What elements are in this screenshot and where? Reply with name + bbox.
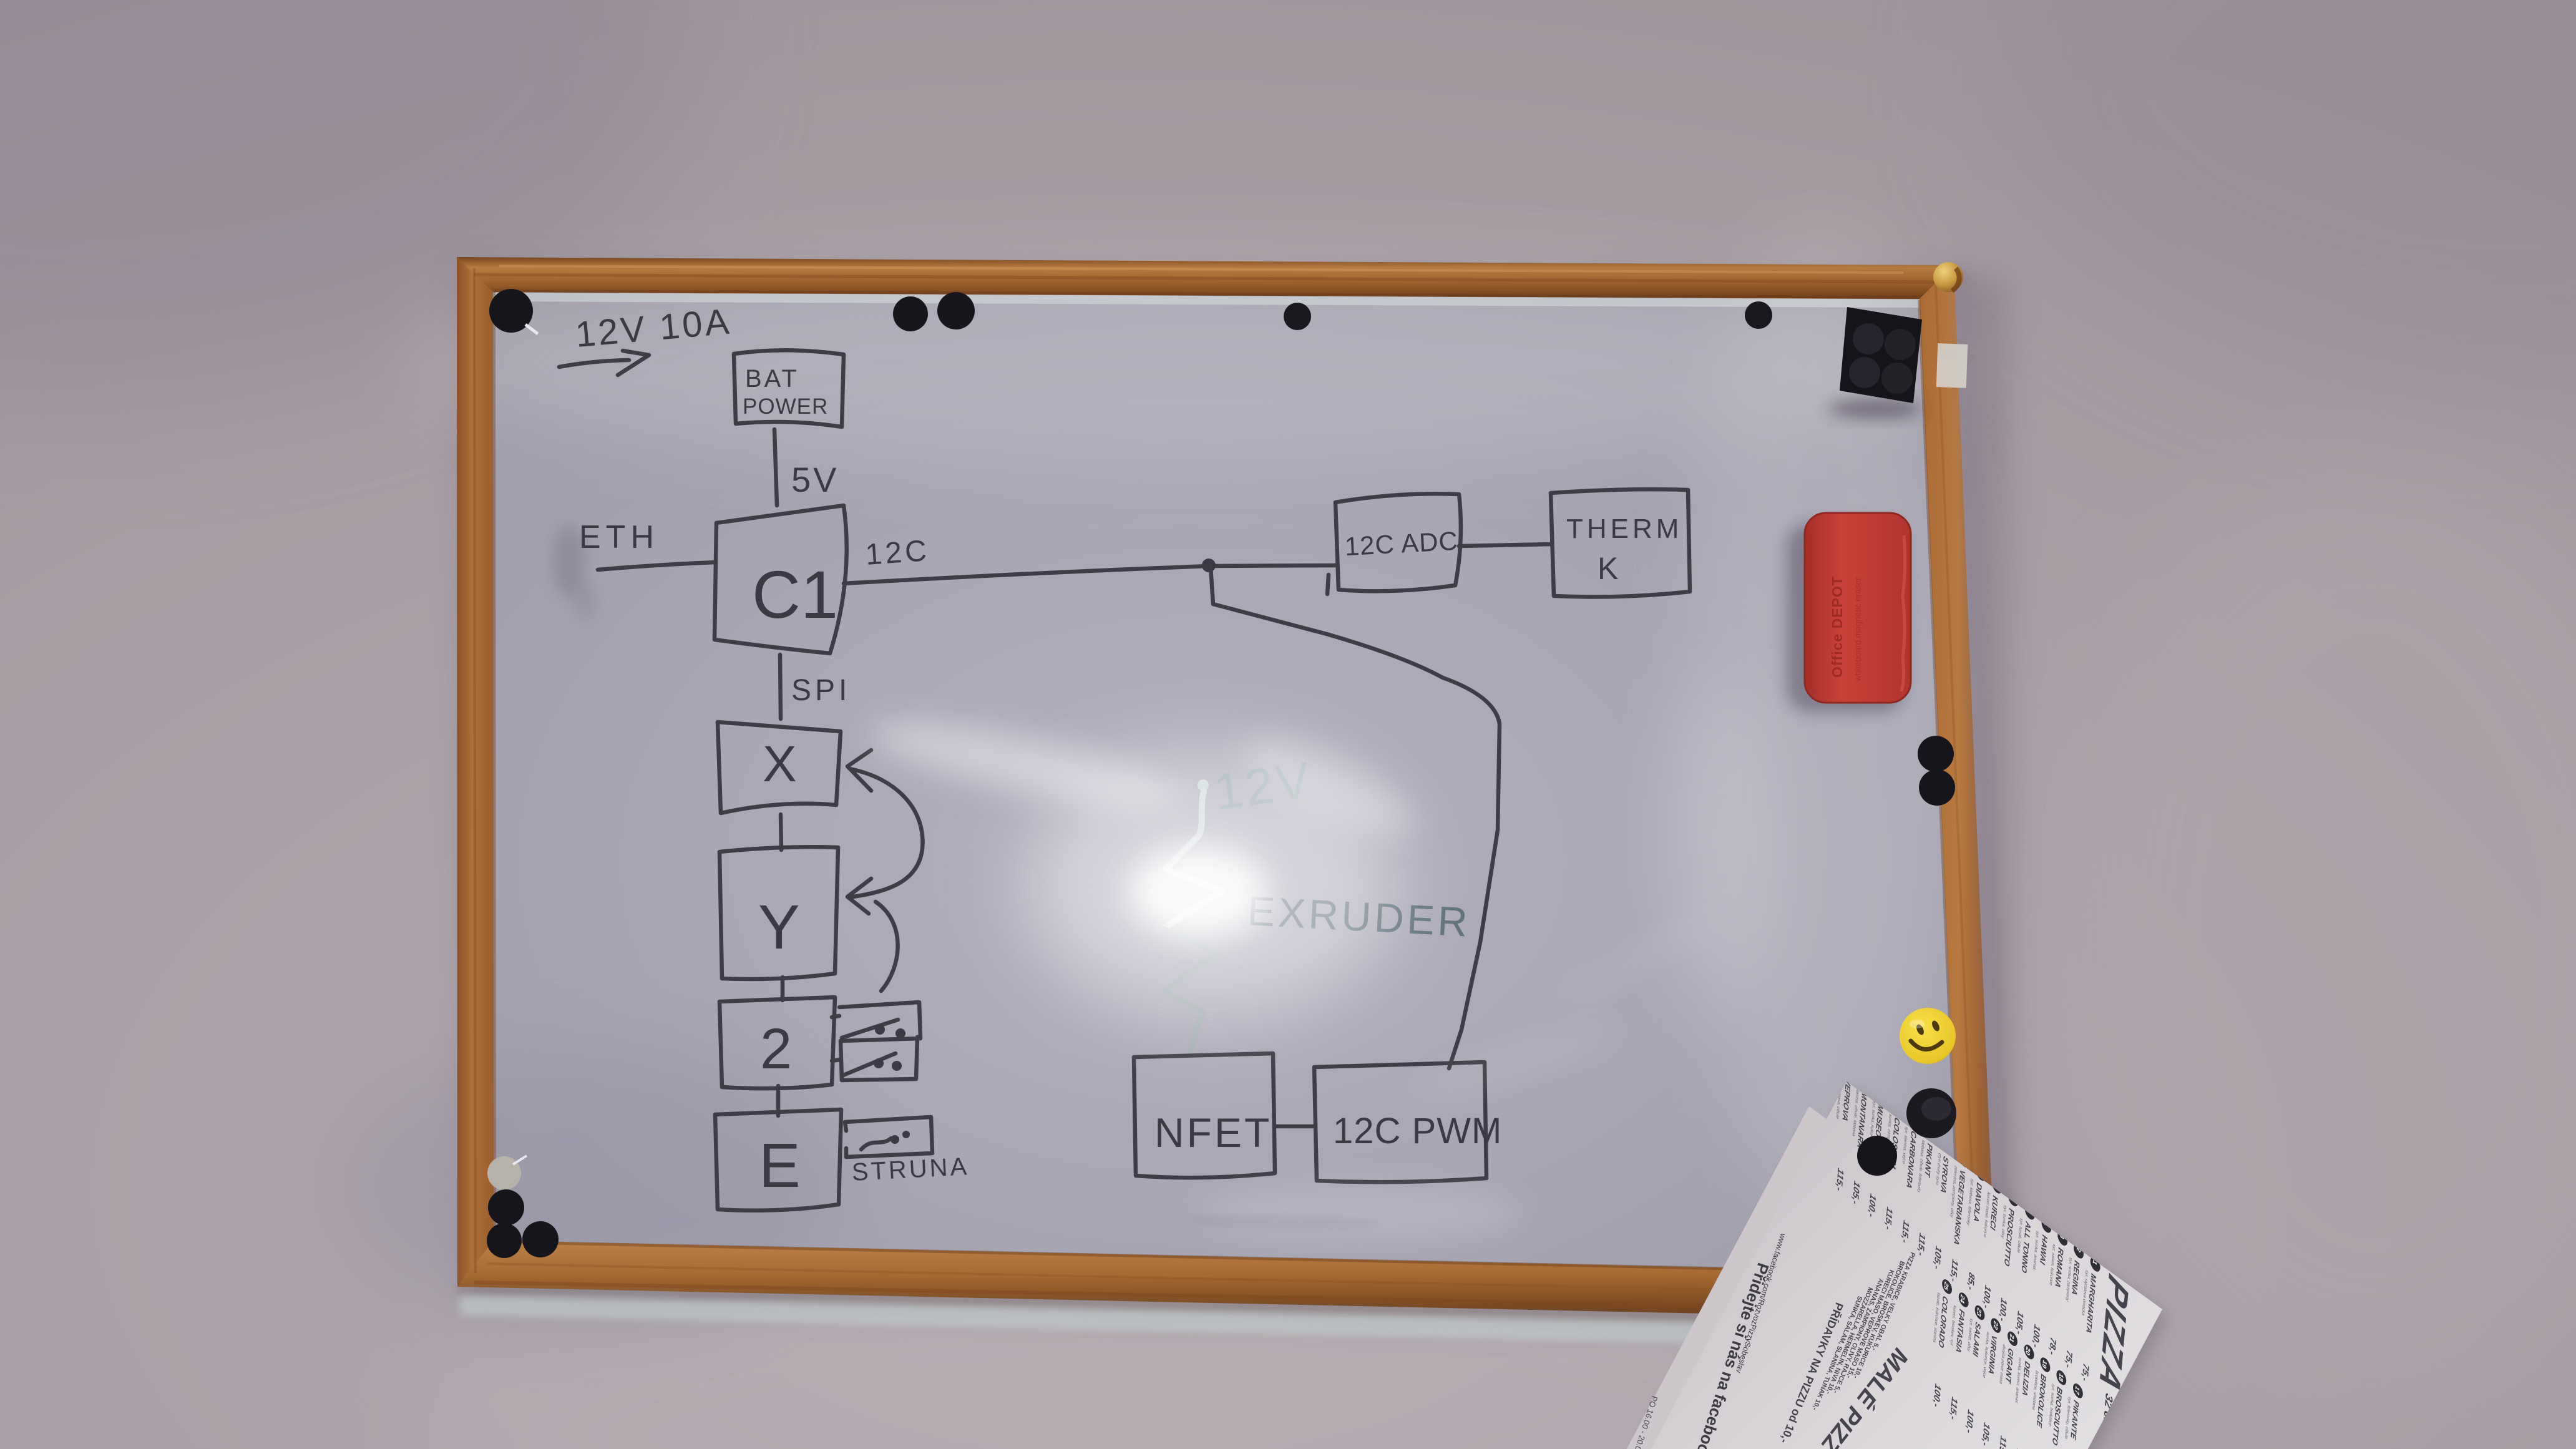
svg-text:POWER: POWER <box>743 394 828 419</box>
svg-text:ETH: ETH <box>579 519 659 555</box>
svg-text:C1: C1 <box>752 557 838 632</box>
svg-text:E: E <box>759 1131 801 1201</box>
svg-text:NFET: NFET <box>1154 1110 1272 1156</box>
svg-text:12C ADC: 12C ADC <box>1344 526 1459 561</box>
svg-text:THERM: THERM <box>1566 514 1682 544</box>
svg-text:2: 2 <box>760 1017 792 1081</box>
svg-text:5V: 5V <box>791 460 839 499</box>
svg-text:Office DEPOT: Office DEPOT <box>1829 576 1845 678</box>
svg-text:Y: Y <box>758 892 800 962</box>
svg-text:12C: 12C <box>864 534 931 572</box>
svg-text:X: X <box>763 736 797 793</box>
svg-text:SPI: SPI <box>791 674 851 707</box>
svg-text:whiteboard magnetic eraser: whiteboard magnetic eraser <box>1853 577 1863 682</box>
svg-text:BAT: BAT <box>745 365 799 393</box>
svg-text:K: K <box>1598 551 1618 586</box>
svg-text:12C PWM: 12C PWM <box>1333 1111 1502 1151</box>
